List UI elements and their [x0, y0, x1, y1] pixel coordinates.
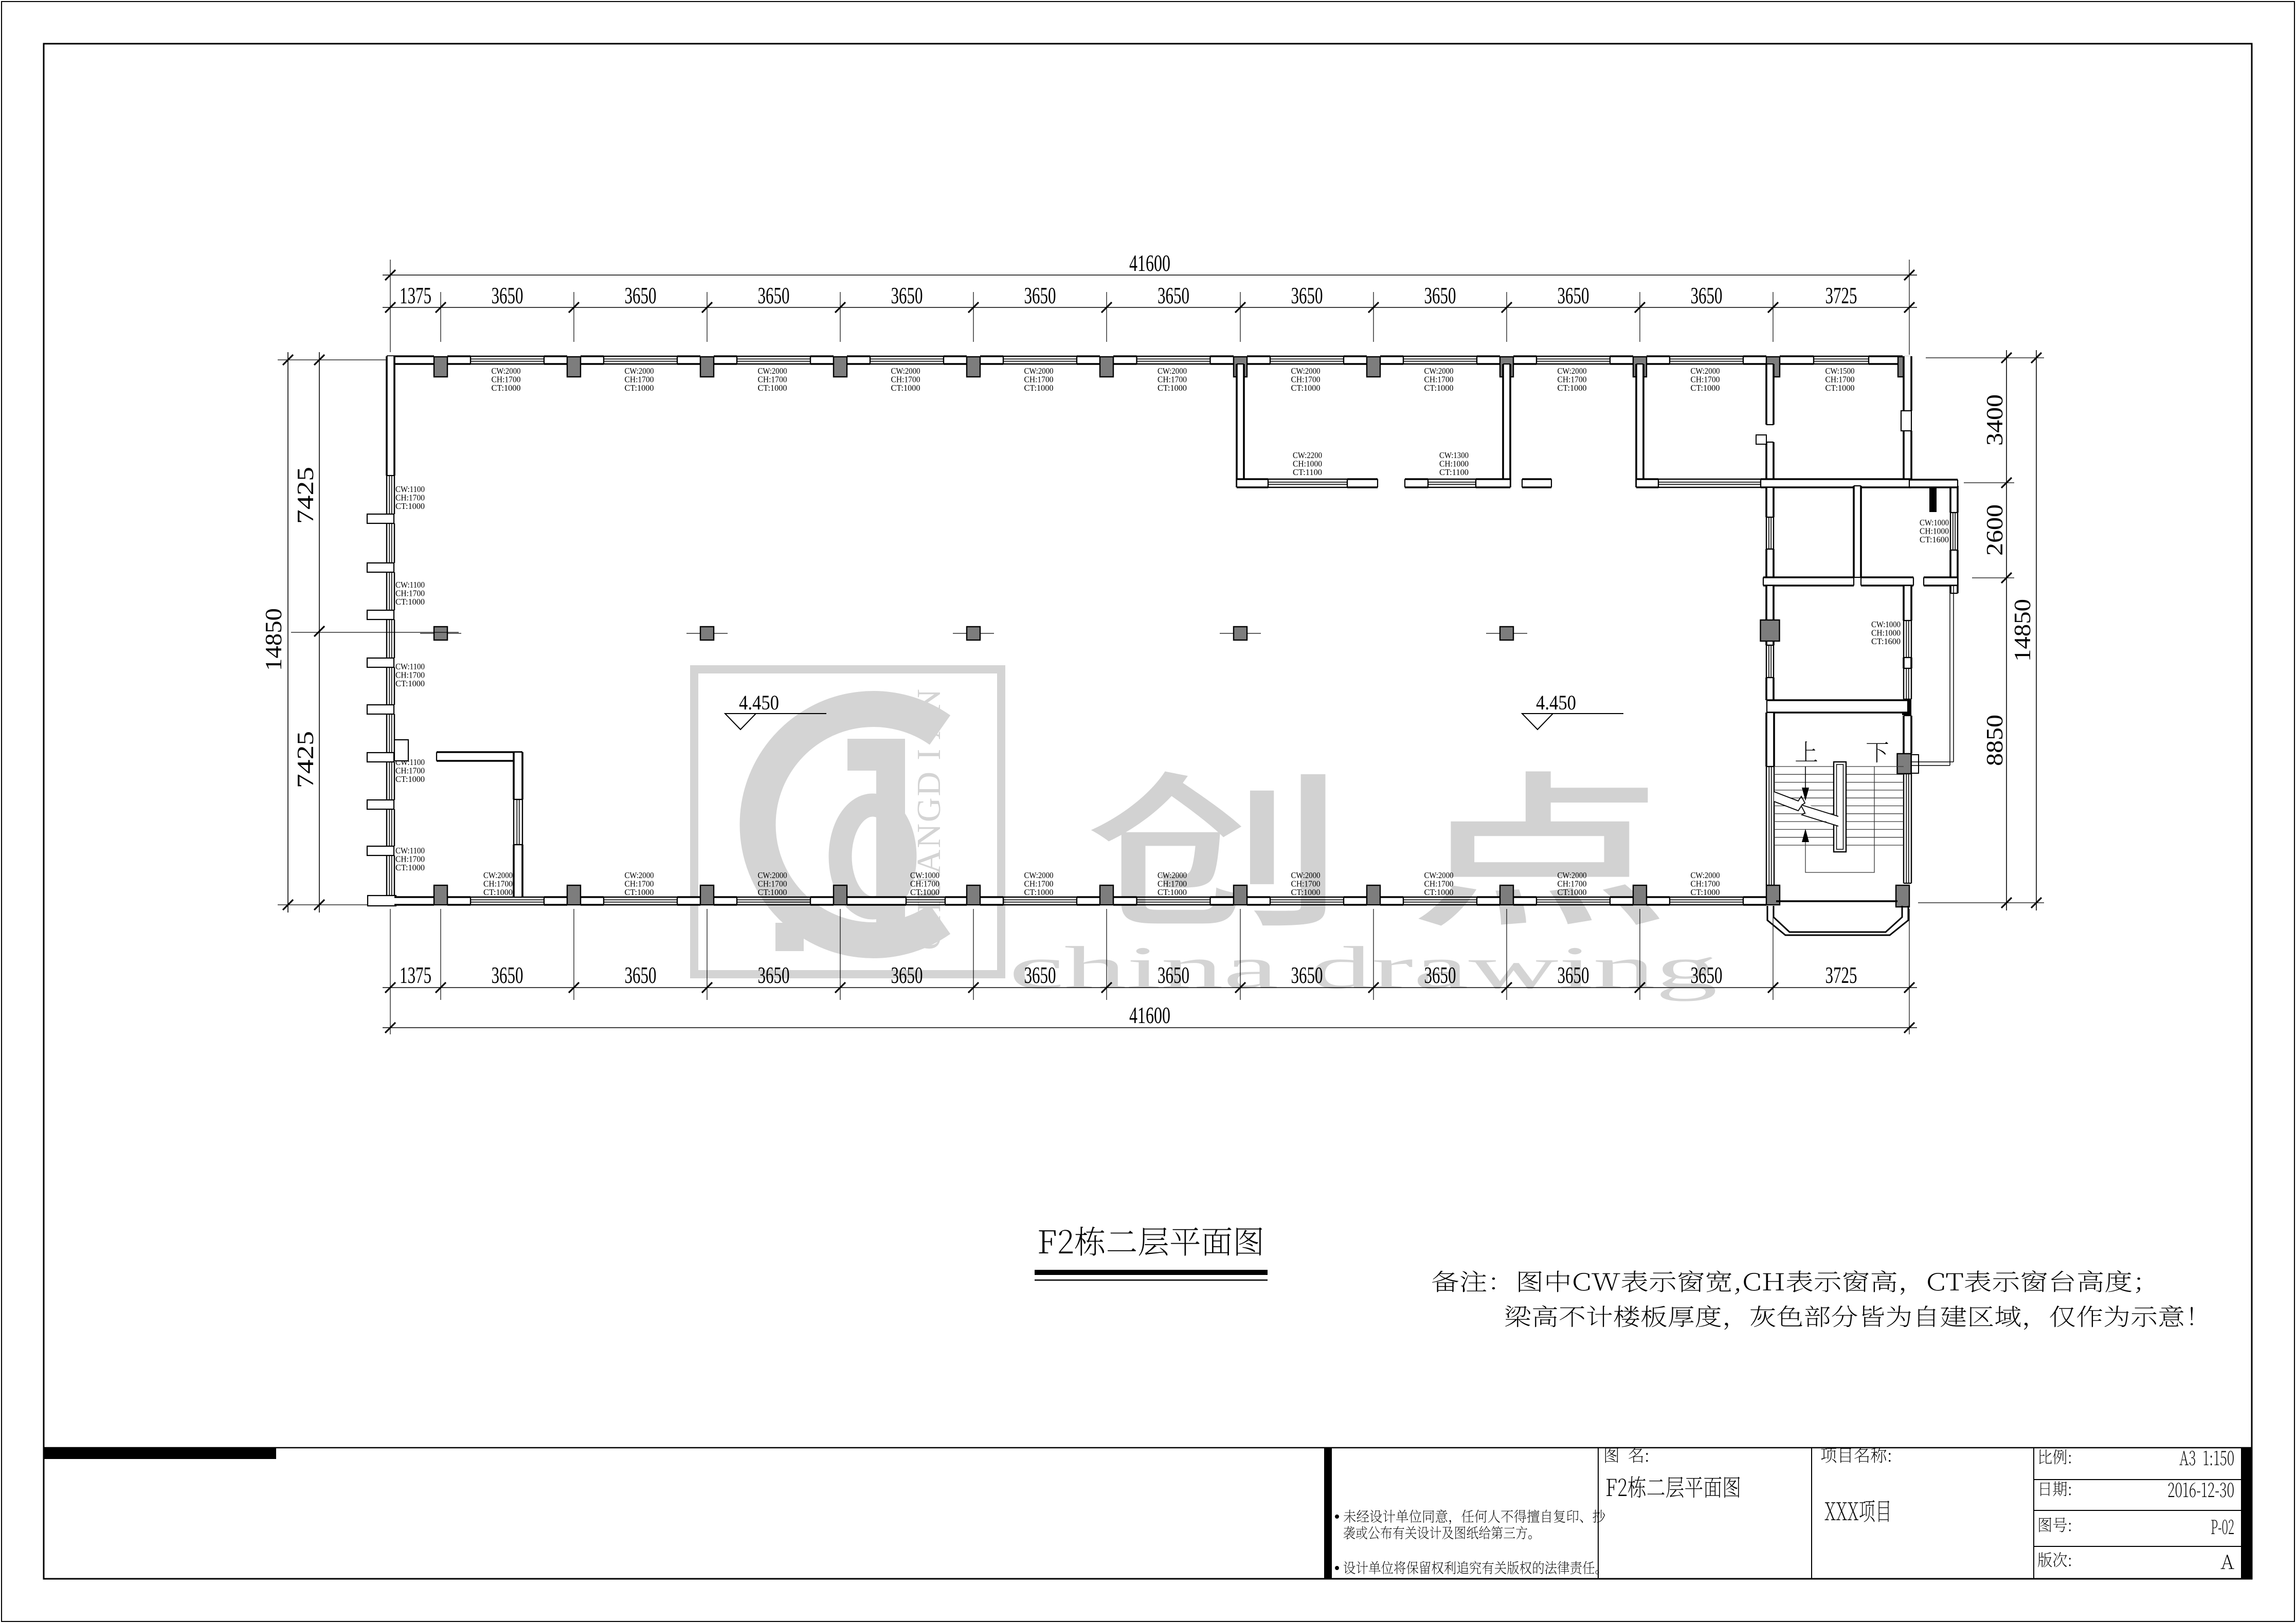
- svg-text:3650: 3650: [1158, 962, 1189, 988]
- svg-text:3650: 3650: [1158, 283, 1189, 308]
- svg-text:3650: 3650: [1424, 962, 1456, 988]
- svg-text:CT:1000: CT:1000: [1158, 887, 1187, 897]
- svg-text:CT:1000: CT:1000: [891, 383, 920, 393]
- svg-text:CT:1000: CT:1000: [1558, 887, 1587, 897]
- svg-text:CT:1000: CT:1000: [910, 887, 939, 897]
- svg-text:3725: 3725: [1825, 962, 1857, 988]
- svg-text:3650: 3650: [492, 962, 523, 988]
- svg-text:3650: 3650: [1691, 283, 1723, 308]
- svg-text:3650: 3650: [1558, 962, 1589, 988]
- svg-text:CT:1000: CT:1000: [758, 887, 787, 897]
- svg-text:CT:1000: CT:1000: [1024, 383, 1054, 393]
- svg-text:3650: 3650: [1024, 962, 1056, 988]
- svg-text:8850: 8850: [1982, 715, 2008, 766]
- svg-text:1375: 1375: [400, 283, 431, 308]
- svg-text:CT:1000: CT:1000: [483, 887, 513, 897]
- svg-text:41600: 41600: [1129, 250, 1170, 276]
- svg-text:CT:1000: CT:1000: [1291, 383, 1321, 393]
- svg-text:7425: 7425: [293, 731, 318, 788]
- svg-text:CT:1000: CT:1000: [395, 679, 425, 688]
- svg-text:3650: 3650: [1691, 962, 1723, 988]
- svg-text:3650: 3650: [891, 962, 923, 988]
- svg-text:14850: 14850: [2010, 599, 2035, 662]
- svg-text:4.450: 4.450: [739, 691, 779, 714]
- svg-text:CT:1000: CT:1000: [395, 597, 425, 607]
- svg-text:CT:1000: CT:1000: [758, 383, 787, 393]
- svg-text:CT:1000: CT:1000: [625, 887, 654, 897]
- svg-text:CT:1000: CT:1000: [395, 774, 425, 784]
- svg-text:3650: 3650: [1024, 283, 1056, 308]
- svg-text:CT:1000: CT:1000: [625, 383, 654, 393]
- svg-text:CT:1000: CT:1000: [1825, 383, 1855, 393]
- svg-text:3650: 3650: [758, 962, 790, 988]
- svg-text:china drawing: china drawing: [1009, 934, 1718, 1001]
- svg-text:2600: 2600: [1982, 504, 2008, 556]
- svg-text:CT:1000: CT:1000: [1691, 383, 1720, 393]
- svg-text:3725: 3725: [1825, 283, 1857, 308]
- svg-text:CT:1000: CT:1000: [1424, 383, 1454, 393]
- svg-text:CT:1000: CT:1000: [1691, 887, 1720, 897]
- svg-text:CT:1000: CT:1000: [1291, 887, 1321, 897]
- svg-text:CT:1000: CT:1000: [395, 501, 425, 511]
- svg-text:CT:1000: CT:1000: [1158, 383, 1187, 393]
- svg-text:41600: 41600: [1129, 1002, 1170, 1028]
- svg-text:CT:1000: CT:1000: [1558, 383, 1587, 393]
- svg-text:CT:1100: CT:1100: [1439, 467, 1469, 477]
- svg-text:3650: 3650: [625, 962, 657, 988]
- svg-text:3650: 3650: [625, 283, 657, 308]
- svg-text:CT:1600: CT:1600: [1871, 636, 1901, 646]
- svg-text:CT:1000: CT:1000: [1424, 887, 1454, 897]
- svg-text:3650: 3650: [891, 283, 923, 308]
- svg-text:1375: 1375: [400, 962, 431, 988]
- svg-text:3650: 3650: [492, 283, 523, 308]
- svg-text:CT:1000: CT:1000: [1024, 887, 1054, 897]
- svg-text:3650: 3650: [758, 283, 790, 308]
- svg-text:CT:1100: CT:1100: [1293, 467, 1322, 477]
- svg-text:3650: 3650: [1291, 283, 1323, 308]
- svg-text:3650: 3650: [1424, 283, 1456, 308]
- svg-text:3650: 3650: [1291, 962, 1323, 988]
- svg-text:CT:1600: CT:1600: [1920, 535, 1949, 544]
- svg-text:7425: 7425: [293, 467, 318, 524]
- svg-text:CT:1000: CT:1000: [395, 863, 425, 872]
- svg-text:4.450: 4.450: [1536, 691, 1576, 714]
- svg-text:CT:1000: CT:1000: [492, 383, 521, 393]
- svg-text:3400: 3400: [1982, 394, 2008, 446]
- svg-text:3650: 3650: [1558, 283, 1589, 308]
- svg-text:CHUANGD I AN: CHUANGD I AN: [910, 687, 948, 950]
- svg-text:14850: 14850: [261, 608, 286, 671]
